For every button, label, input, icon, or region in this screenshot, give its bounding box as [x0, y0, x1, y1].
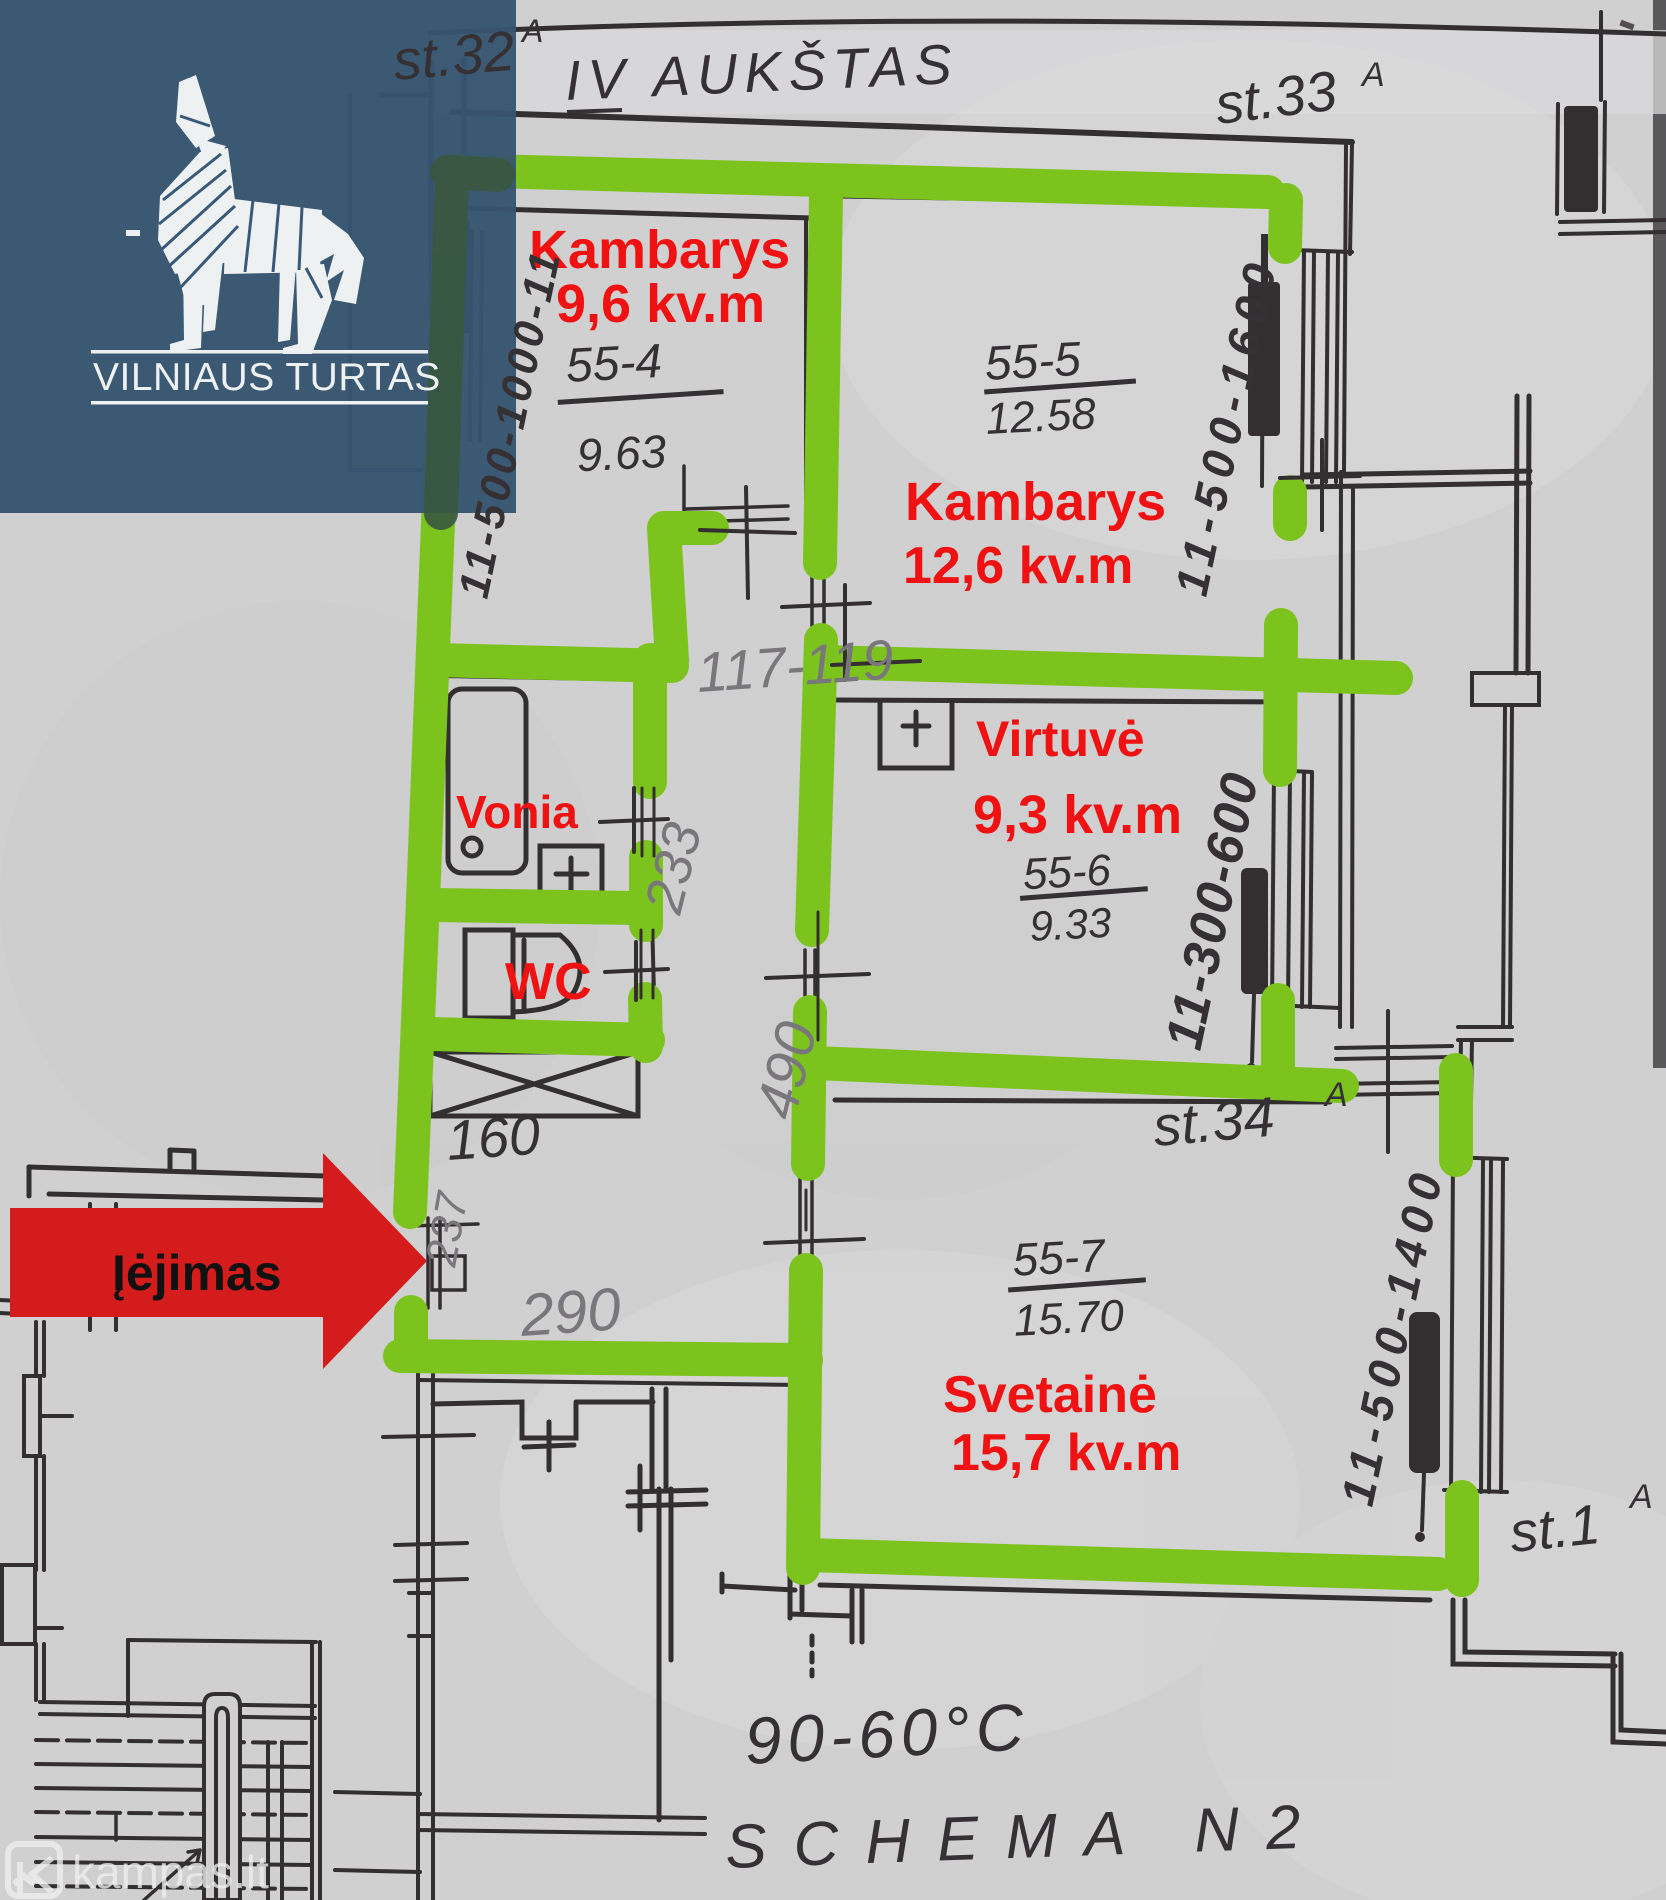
svg-text:Svetainė: Svetainė: [943, 1366, 1157, 1424]
svg-text:Kambarys: Kambarys: [529, 220, 790, 280]
svg-text:A: A: [520, 13, 543, 49]
svg-text:A: A: [1628, 1478, 1653, 1516]
svg-text:15,7 kv.m: 15,7 kv.m: [951, 1424, 1181, 1482]
svg-text:Įėjimas: Įėjimas: [112, 1245, 282, 1301]
svg-text:Kambarys: Kambarys: [905, 472, 1166, 532]
svg-text:A: A: [1360, 56, 1385, 94]
svg-text:Virtuvė: Virtuvė: [976, 711, 1145, 767]
svg-text:55-5: 55-5: [983, 333, 1082, 391]
svg-text:A: A: [1323, 1076, 1348, 1114]
svg-text:9,6 kv.m: 9,6 kv.m: [556, 274, 765, 334]
svg-text:55-4: 55-4: [565, 335, 664, 393]
svg-text:Vonia: Vonia: [456, 786, 578, 838]
svg-text:12,6 kv.m: 12,6 kv.m: [903, 537, 1133, 595]
svg-text:160: 160: [444, 1103, 542, 1172]
svg-text:90-60°C: 90-60°C: [743, 1689, 1031, 1778]
svg-text:st.1: st.1: [1507, 1492, 1603, 1564]
svg-text:290: 290: [517, 1275, 623, 1349]
svg-text:9,3 kv.m: 9,3 kv.m: [973, 785, 1182, 845]
svg-text:kampas.lt: kampas.lt: [72, 1846, 269, 1898]
svg-text:WC: WC: [505, 953, 592, 1011]
svg-text:VILNIAUS TURTAS: VILNIAUS TURTAS: [93, 356, 441, 399]
svg-text:9.63: 9.63: [575, 425, 668, 482]
svg-text:9.33: 9.33: [1028, 899, 1112, 950]
svg-text:st.32: st.32: [391, 19, 517, 92]
svg-text:15.70: 15.70: [1013, 1291, 1126, 1346]
svg-text:st.34: st.34: [1151, 1085, 1277, 1158]
svg-text:55-7: 55-7: [1011, 1229, 1107, 1286]
svg-text:12.58: 12.58: [984, 389, 1097, 444]
